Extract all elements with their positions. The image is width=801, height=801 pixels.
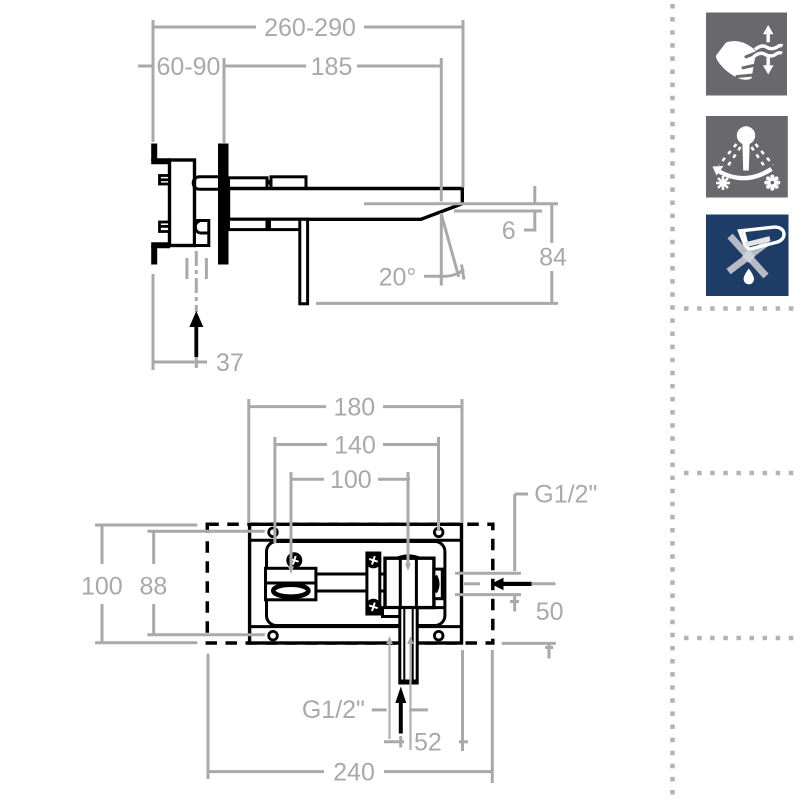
svg-text:60-90: 60-90 xyxy=(157,53,221,81)
svg-text:140: 140 xyxy=(334,432,376,460)
svg-text:37: 37 xyxy=(216,349,244,377)
svg-text:88: 88 xyxy=(139,573,167,601)
svg-text:180: 180 xyxy=(333,394,375,422)
svg-text:100: 100 xyxy=(81,573,123,601)
svg-text:G1/2": G1/2" xyxy=(302,696,365,724)
svg-text:50: 50 xyxy=(536,598,564,626)
svg-text:100: 100 xyxy=(330,466,372,494)
svg-text:185: 185 xyxy=(311,53,353,81)
svg-text:84: 84 xyxy=(539,244,567,272)
svg-text:240: 240 xyxy=(333,759,375,787)
svg-text:G1/2": G1/2" xyxy=(534,481,597,509)
svg-text:20°: 20° xyxy=(379,264,417,292)
svg-text:52: 52 xyxy=(414,729,442,757)
svg-text:6: 6 xyxy=(502,217,516,245)
svg-text:260-290: 260-290 xyxy=(264,14,356,42)
